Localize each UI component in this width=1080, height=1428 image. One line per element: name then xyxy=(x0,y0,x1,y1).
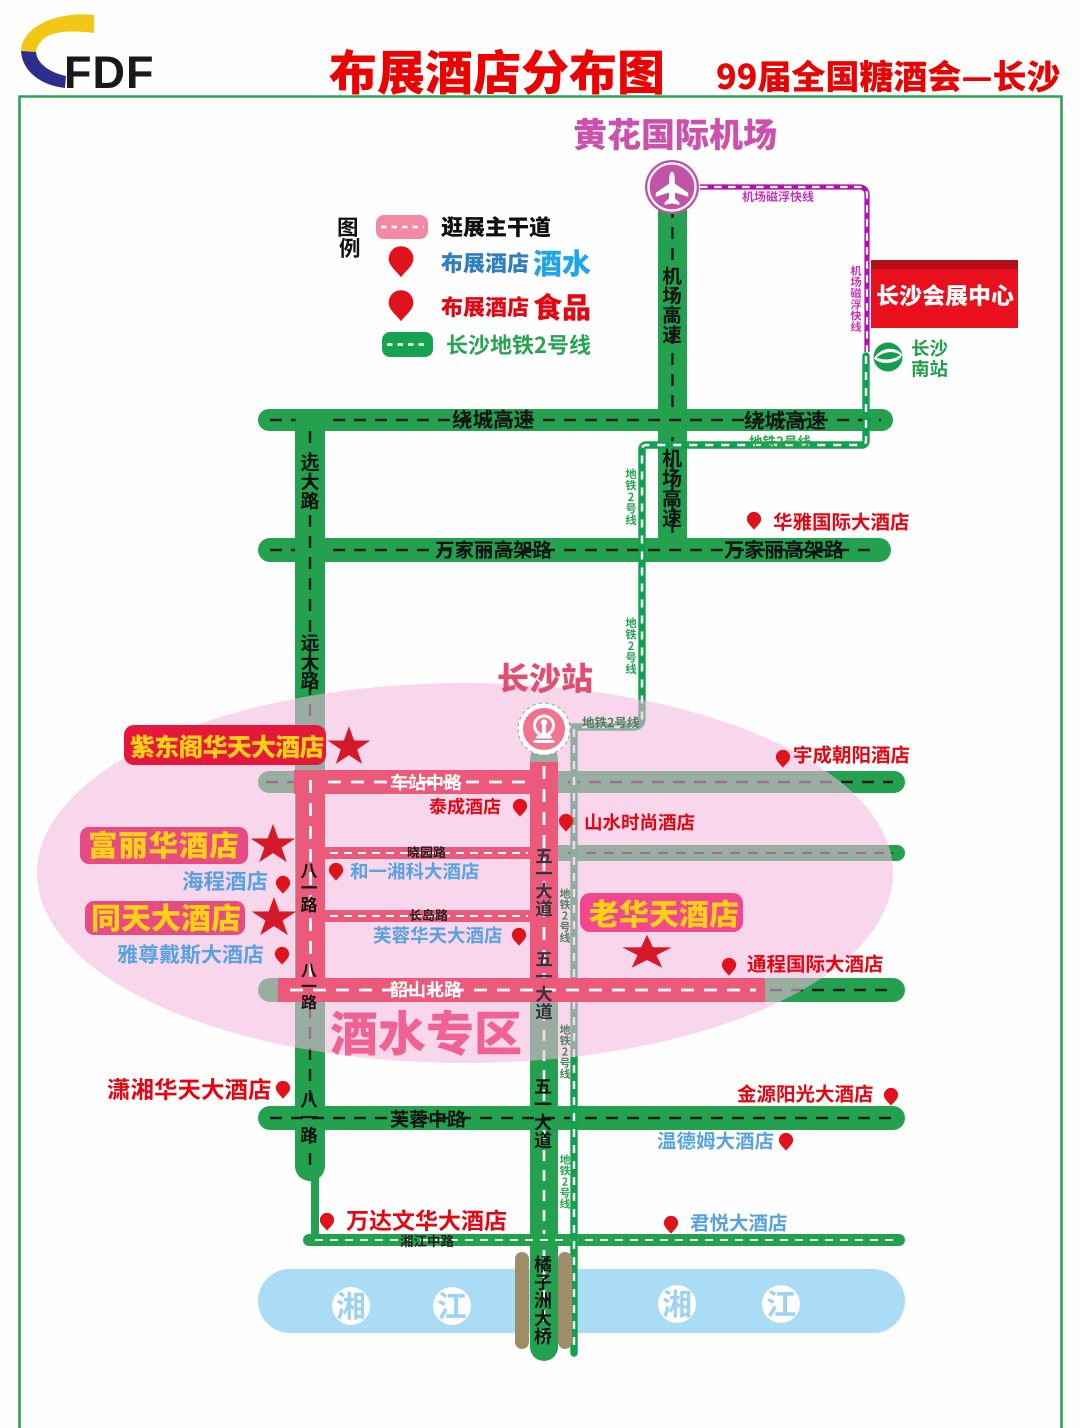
svg-text:FDF: FDF xyxy=(64,47,154,98)
